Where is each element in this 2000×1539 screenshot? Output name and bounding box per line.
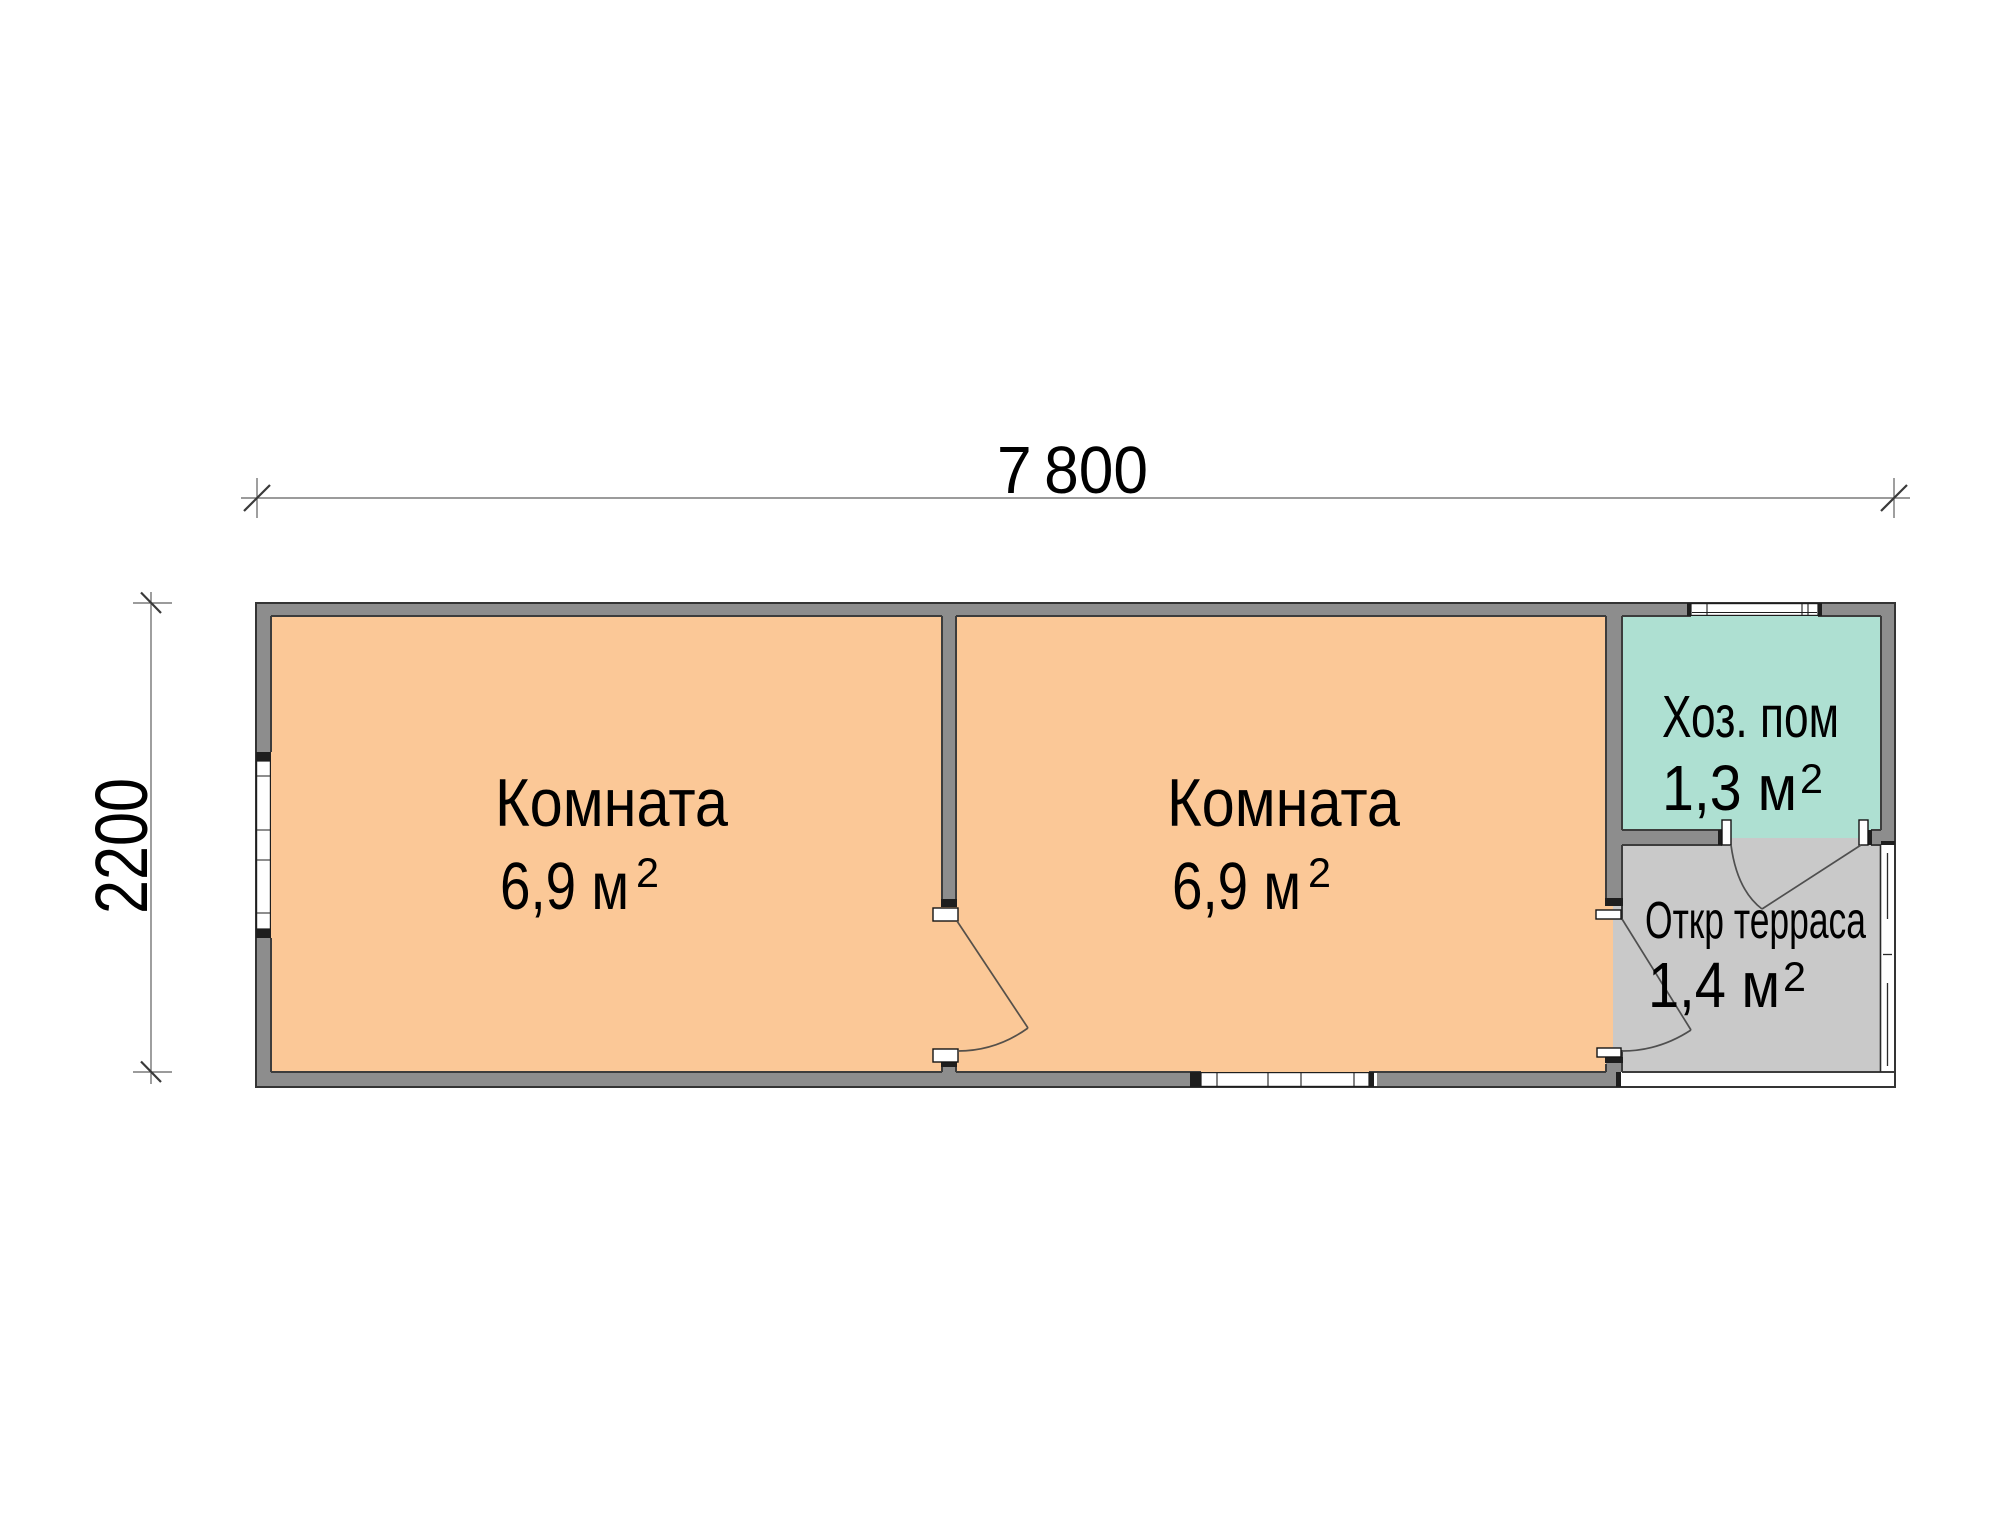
svg-text:6,9 м: 6,9 м [500,849,629,924]
svg-text:Откр терраса: Откр терраса [1645,892,1866,950]
svg-text:2: 2 [1783,953,1806,1000]
svg-text:2: 2 [636,849,659,896]
svg-text:1,4 м: 1,4 м [1648,949,1780,1021]
svg-text:2: 2 [1308,849,1331,896]
svg-text:6,9 м: 6,9 м [1172,849,1301,924]
svg-text:Комната: Комната [1167,765,1400,841]
svg-text:2200: 2200 [80,778,163,914]
svg-text:Комната: Комната [495,765,728,841]
svg-text:7 800: 7 800 [997,433,1148,508]
svg-text:2: 2 [1800,755,1823,802]
svg-text:Хоз. пом: Хоз. пом [1662,684,1839,750]
svg-text:1,3 м: 1,3 м [1662,752,1797,824]
